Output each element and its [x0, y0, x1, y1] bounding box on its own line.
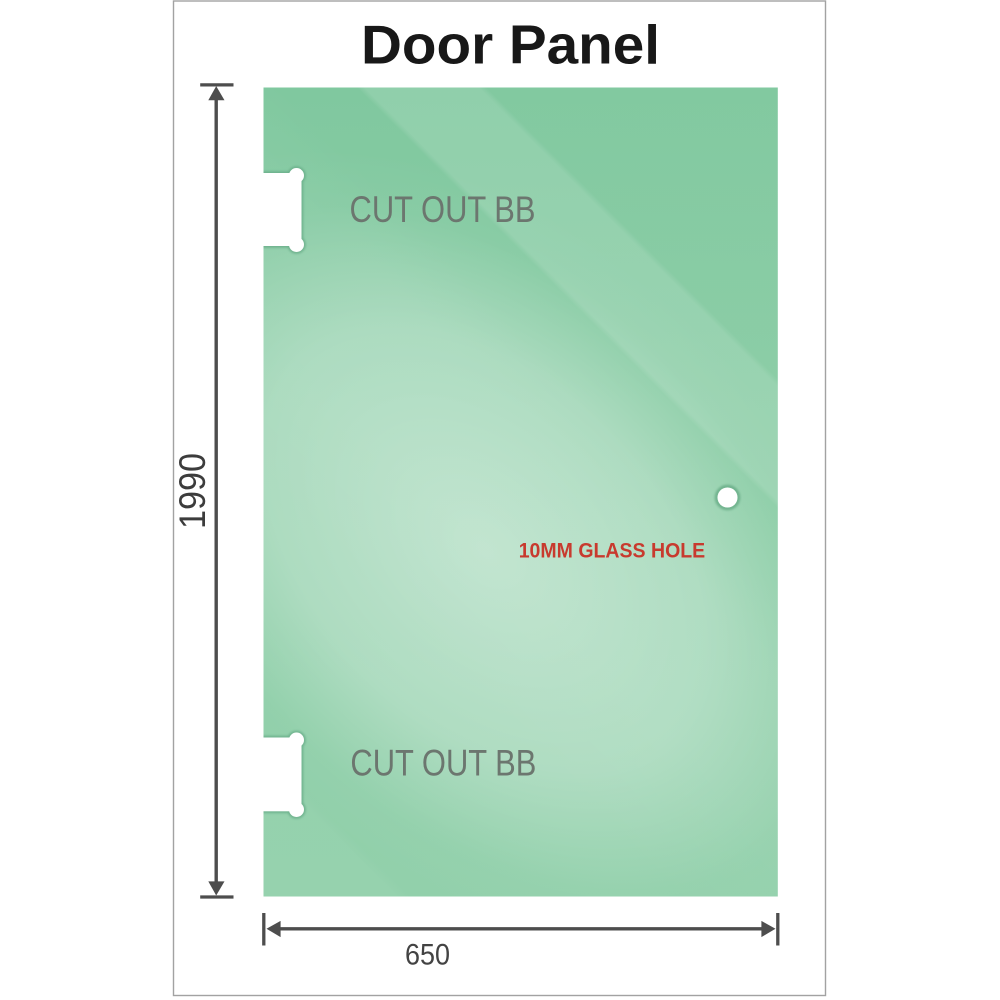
svg-text:10MM GLASS HOLE: 10MM GLASS HOLE — [519, 540, 706, 563]
svg-text:1990: 1990 — [172, 453, 213, 529]
svg-text:CUT OUT BB: CUT OUT BB — [350, 189, 536, 230]
svg-text:650: 650 — [405, 938, 450, 971]
svg-text:Door Panel: Door Panel — [361, 14, 660, 76]
svg-text:CUT OUT BB: CUT OUT BB — [350, 743, 536, 784]
